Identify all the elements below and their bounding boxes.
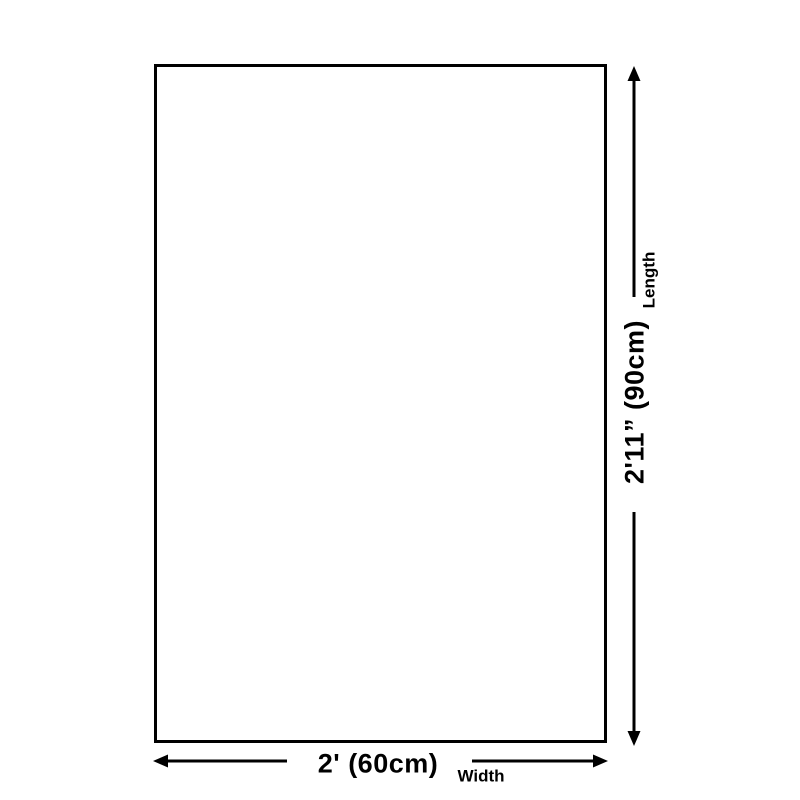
length-axis-label: Length <box>641 252 658 309</box>
dimension-diagram: 2' (60cm) Width 2'11” (90cm) Length <box>0 0 800 800</box>
width-value-label: 2' (60cm) <box>318 751 438 778</box>
dimension-arrows <box>0 0 800 800</box>
length-value-label: 2'11” (90cm) <box>622 320 649 484</box>
arrow-down-icon <box>628 512 641 746</box>
arrow-left-icon <box>153 755 287 768</box>
width-axis-label: Width <box>457 768 504 785</box>
